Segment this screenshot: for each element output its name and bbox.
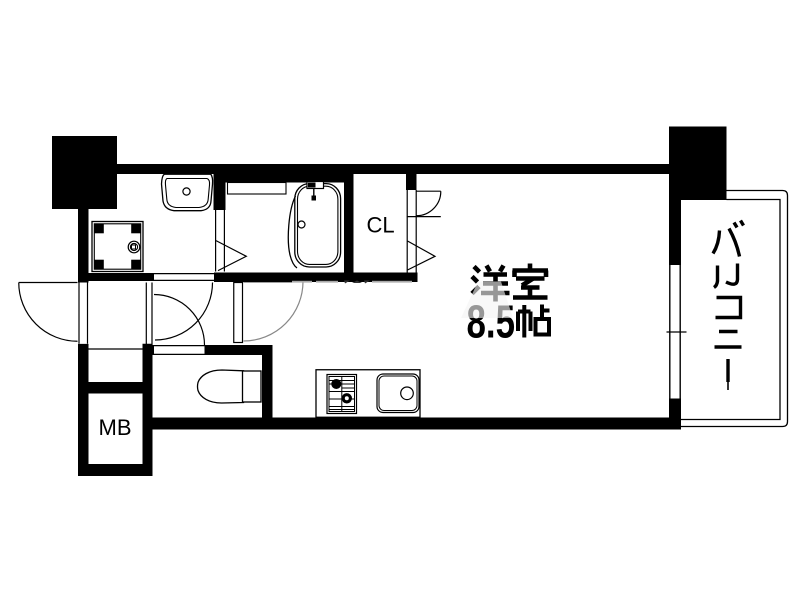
svg-text:CL: CL — [367, 213, 395, 238]
svg-text:MB: MB — [99, 415, 132, 440]
